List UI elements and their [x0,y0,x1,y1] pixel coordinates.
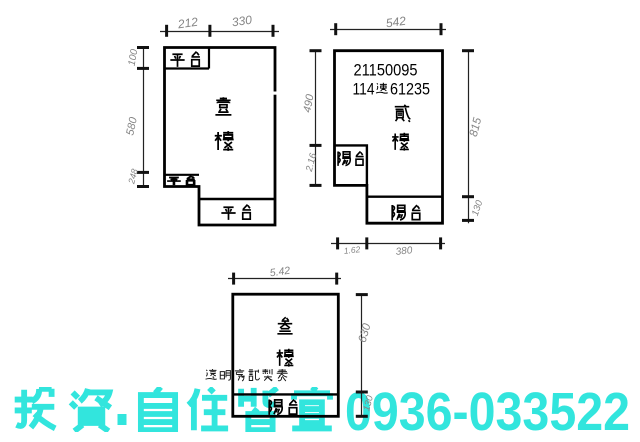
svg-text:130: 130 [470,198,486,217]
svg-text:490: 490 [302,93,317,114]
svg-text:21150095: 21150095 [354,61,418,80]
svg-text:61235: 61235 [390,80,430,99]
svg-text:815: 815 [468,116,484,138]
svg-text:2.16: 2.16 [304,151,320,173]
svg-text:248: 248 [126,168,140,186]
svg-text:330: 330 [231,13,253,30]
svg-text:5.42: 5.42 [269,265,291,280]
svg-text:212: 212 [176,15,199,32]
svg-text:542: 542 [385,14,407,31]
svg-text:100: 100 [127,48,141,67]
svg-text:380: 380 [395,245,413,258]
svg-text:630: 630 [357,322,374,344]
svg-text:1.62: 1.62 [343,244,361,256]
svg-text:0936-033522: 0936-033522 [345,382,630,442]
svg-text:114: 114 [353,80,375,99]
svg-text:580: 580 [124,115,140,136]
